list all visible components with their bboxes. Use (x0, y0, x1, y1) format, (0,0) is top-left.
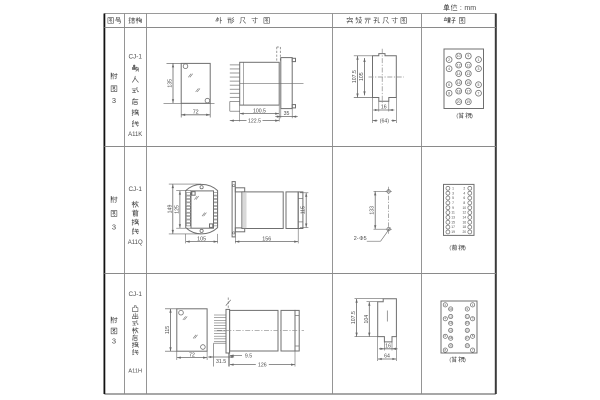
svg-text:11: 11 (466, 314, 469, 318)
svg-text:100.5: 100.5 (253, 108, 266, 114)
svg-text:125: 125 (174, 205, 180, 214)
svg-text:104: 104 (364, 315, 370, 324)
svg-text:mm: mm (464, 5, 476, 12)
svg-text:16: 16 (381, 105, 387, 111)
svg-text:72: 72 (189, 352, 195, 358)
svg-text:2-: 2- (354, 236, 359, 242)
svg-text:16: 16 (462, 220, 466, 224)
svg-text:35: 35 (284, 111, 290, 117)
svg-text:11: 11 (451, 211, 455, 215)
svg-text:105: 105 (359, 72, 365, 81)
svg-text:133: 133 (370, 206, 376, 215)
svg-text:2: 2 (463, 186, 465, 190)
svg-text:135: 135 (168, 79, 174, 88)
svg-text:149: 149 (167, 205, 173, 214)
svg-text:115: 115 (165, 326, 171, 334)
svg-text:3: 3 (478, 67, 480, 71)
svg-text:A11K: A11K (128, 132, 142, 138)
svg-text:107.5: 107.5 (351, 311, 357, 324)
svg-text:9.5: 9.5 (245, 353, 252, 359)
svg-text:17: 17 (451, 225, 455, 229)
svg-text:(: ( (449, 246, 451, 252)
svg-text:20: 20 (449, 344, 453, 348)
svg-text:14: 14 (462, 216, 466, 220)
svg-text:5: 5 (478, 83, 480, 87)
svg-text:CJ-1: CJ-1 (128, 186, 142, 193)
svg-text:16: 16 (385, 343, 391, 349)
svg-text:): ) (464, 246, 466, 252)
svg-text:64: 64 (384, 354, 390, 360)
svg-text:122.5: 122.5 (248, 118, 261, 124)
svg-text:19: 19 (466, 100, 470, 104)
svg-text:105: 105 (197, 236, 206, 242)
svg-text:17: 17 (466, 89, 470, 93)
svg-text:A11H: A11H (128, 368, 142, 374)
svg-text:6: 6 (463, 196, 465, 200)
svg-text:8: 8 (463, 201, 465, 205)
svg-text:9: 9 (467, 54, 469, 58)
svg-text:15: 15 (466, 81, 470, 85)
svg-text:1: 1 (452, 186, 454, 190)
svg-text:20: 20 (457, 100, 461, 104)
svg-text:3: 3 (112, 337, 116, 346)
svg-text:13: 13 (466, 321, 470, 325)
svg-text:5: 5 (452, 196, 454, 200)
svg-text:126: 126 (258, 362, 267, 368)
svg-text:10: 10 (449, 307, 453, 311)
svg-text:CJ-1: CJ-1 (128, 291, 142, 298)
svg-text:(64): (64) (380, 118, 389, 124)
svg-text:2: 2 (448, 58, 450, 62)
svg-text:3: 3 (112, 96, 116, 105)
svg-text:12: 12 (449, 314, 453, 318)
svg-text:15: 15 (466, 328, 470, 332)
svg-text:11: 11 (467, 63, 471, 67)
svg-text:10: 10 (457, 54, 461, 58)
svg-text:156: 156 (262, 236, 271, 242)
svg-text:18: 18 (462, 225, 466, 229)
svg-text:16: 16 (457, 81, 461, 85)
svg-text:4: 4 (463, 191, 465, 195)
svg-text:18: 18 (457, 89, 461, 93)
svg-text:107.5: 107.5 (352, 70, 358, 83)
svg-text:12: 12 (457, 63, 461, 67)
svg-text:(: ( (449, 357, 451, 363)
svg-text:3: 3 (112, 222, 116, 231)
svg-text:15: 15 (451, 220, 455, 224)
svg-text:): ) (464, 357, 466, 363)
svg-text::: : (460, 5, 462, 12)
svg-text:14: 14 (457, 72, 461, 76)
svg-text:16: 16 (449, 328, 453, 332)
svg-text:(: ( (456, 114, 458, 120)
svg-text:): ) (471, 114, 473, 120)
svg-text:20: 20 (462, 230, 466, 234)
svg-text:3: 3 (452, 191, 454, 195)
svg-text:31.5: 31.5 (216, 359, 226, 365)
svg-text:1: 1 (478, 58, 480, 62)
svg-text:72: 72 (193, 110, 199, 116)
svg-text:8: 8 (448, 91, 450, 95)
svg-text:10: 10 (462, 206, 466, 210)
svg-text:13: 13 (451, 216, 455, 220)
svg-text:14: 14 (449, 321, 453, 325)
svg-text:19: 19 (466, 344, 470, 348)
svg-text:7: 7 (478, 91, 480, 95)
svg-text:17: 17 (466, 336, 470, 340)
svg-text:CJ-1: CJ-1 (128, 54, 142, 61)
svg-text:19: 19 (451, 230, 455, 234)
svg-text:Φ5: Φ5 (359, 236, 366, 242)
svg-text:9: 9 (452, 206, 454, 210)
svg-text:4: 4 (448, 67, 450, 71)
svg-text:6: 6 (448, 83, 450, 87)
svg-text:12: 12 (462, 211, 466, 215)
svg-text:7: 7 (452, 201, 454, 205)
svg-text:13: 13 (466, 72, 470, 76)
svg-text:115: 115 (301, 206, 307, 214)
svg-text:18: 18 (449, 336, 453, 340)
svg-text:A11Q: A11Q (128, 240, 143, 246)
